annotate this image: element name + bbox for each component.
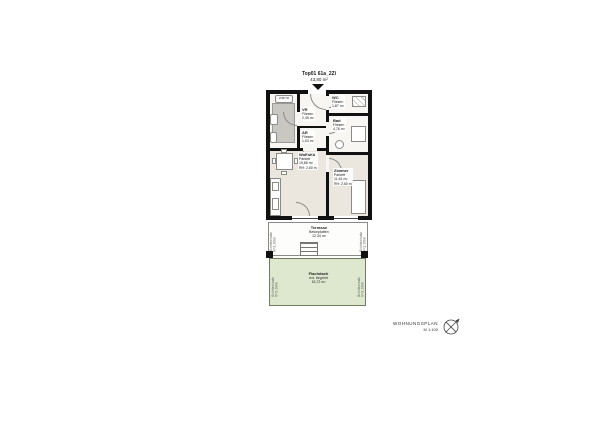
- room-label-zimmer: Zimmer Parkett 11,61 m² RH: 2,60 m: [333, 168, 353, 186]
- room-label-wc: WC Fliesen 1,87 m²: [331, 95, 345, 109]
- plan-scale: M 1:100: [360, 327, 438, 332]
- wall-bottom-b: [318, 216, 334, 220]
- privacy-screen-label-roof-left: Sichtschutz h=2,00m: [272, 267, 279, 297]
- wall-wc-bad: [329, 113, 368, 116]
- privacy-screen-label-roof-right: Sichtschutz h=2,00m: [358, 267, 365, 297]
- wall-room-stub: [326, 152, 329, 155]
- cooktop-icon: [272, 198, 279, 210]
- wall-vr-ar: [300, 126, 326, 128]
- chair-right: [294, 158, 298, 164]
- wall-top-left: [266, 90, 308, 94]
- shaft-box: [352, 96, 366, 107]
- privacy-screen-label-terrace-left: Sichtschutz h=2,00m: [270, 226, 277, 252]
- room-label-terrasse: Terrasse Betonplatten 12,34 m²: [268, 225, 370, 239]
- wall-bottom-c: [358, 216, 372, 220]
- wall-bad-room: [329, 152, 368, 155]
- dining-table: [276, 153, 293, 170]
- pillar-right: [361, 251, 368, 258]
- wall-living-room-divider: [326, 172, 329, 216]
- unit-title: Top01 61a_2Zi 43,80 m²: [266, 71, 372, 82]
- privacy-screen-label-terrace-right: Sichtschutz h=2,00m: [360, 226, 367, 252]
- north-arrow-icon: [441, 315, 463, 342]
- unit-area: 43,80 m²: [266, 77, 372, 82]
- bad-washbasin-icon: [335, 140, 344, 149]
- toilet-icon: [270, 132, 277, 143]
- chair-top: [281, 149, 287, 153]
- kitchen-sink-icon: [272, 182, 279, 191]
- plan-legend: WOHNUNGSPLAN M 1:100: [360, 321, 438, 332]
- pillar-left: [266, 251, 273, 258]
- wall-living-top-b: [317, 148, 329, 151]
- chair-left: [272, 158, 276, 164]
- wall-top-right: [326, 90, 372, 94]
- room-label-wohnkueche: WoEsKü Parkett 19,86 m² RH: 2,60 m: [298, 152, 318, 170]
- wardrobe: [351, 180, 366, 214]
- chair-bottom: [281, 171, 287, 175]
- entrance-arrow-icon: [312, 84, 324, 90]
- room-label-vr: VR Fliesen 2,45 m²: [301, 107, 315, 121]
- floor-plan-page: Top01 61a_2Zi 43,80 m² WM/TR: [0, 0, 600, 421]
- window-sill: [334, 218, 358, 219]
- room-label-flachdach: Flachdach ext. begrünt 15,72 m²: [269, 271, 368, 285]
- shower-icon: [351, 126, 366, 142]
- wall-bottom-a: [266, 216, 292, 220]
- wall-wc-mid: [326, 110, 329, 122]
- wall-bath-upper: [297, 94, 300, 112]
- terrace-door-sill: [292, 218, 318, 219]
- washer-dryer-label: WM/TR: [275, 97, 293, 100]
- terrace-steps-icon: [300, 242, 318, 256]
- room-label-bad: Bad Fliesen 4,76 m²: [332, 118, 346, 132]
- washbasin-icon: [270, 114, 278, 125]
- room-label-ar: AR Fliesen 1,63 m²: [301, 130, 315, 144]
- wall-right: [368, 90, 372, 220]
